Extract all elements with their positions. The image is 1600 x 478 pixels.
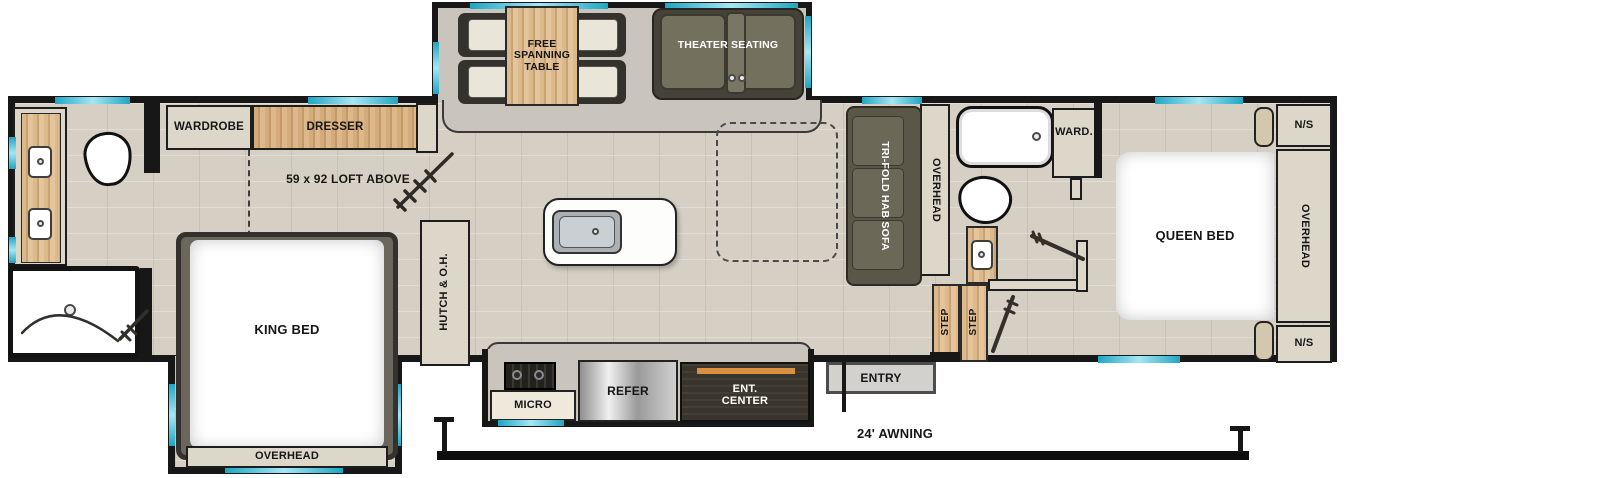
- faucet-icon: [37, 220, 44, 227]
- window: [805, 16, 811, 88]
- island-sink-basin: [559, 216, 615, 248]
- faucet-icon: [978, 251, 985, 258]
- ent-center-label: ENT. CENTER: [710, 382, 780, 410]
- rear-wardrobe: [1052, 108, 1096, 178]
- dresser-label: DRESSER: [252, 105, 418, 150]
- bedroom-pillar: [416, 103, 438, 153]
- living-overhead-label: OVERHEAD: [928, 115, 942, 265]
- slide-footprint-outline: [716, 122, 838, 262]
- window: [308, 97, 398, 104]
- shower-head-icon: [64, 304, 76, 316]
- window: [169, 384, 175, 446]
- awning-label: 24' AWNING: [820, 426, 970, 442]
- nightstand-bottom-label: N/S: [1276, 325, 1332, 363]
- cupholder: [728, 74, 736, 82]
- bath-wall: [144, 103, 160, 173]
- window: [433, 42, 439, 94]
- window: [1098, 356, 1180, 363]
- micro-label: MICRO: [490, 390, 576, 421]
- floorplan: FREE SPANNING TABLE THEATER SEATING WARD…: [0, 0, 1600, 478]
- awning-arm-cap: [434, 417, 454, 422]
- king-bed-mattress: [190, 240, 384, 448]
- step-upper-label: STEP: [940, 290, 952, 354]
- loft-label: 59 x 92 LOFT ABOVE: [278, 171, 418, 187]
- queen-bolster: [1254, 107, 1274, 147]
- sofa-label: TRI-FOLD HAB SOFA: [869, 136, 899, 256]
- rear-wardrobe-post: [1070, 178, 1082, 200]
- refer-label: REFER: [578, 376, 678, 406]
- bench-cushion: [576, 66, 618, 98]
- window: [9, 137, 16, 169]
- queen-bolster: [1254, 321, 1274, 361]
- tub-drain-icon: [1032, 132, 1041, 141]
- rear-overhead-label: OVERHEAD: [1297, 161, 1311, 311]
- burner: [534, 370, 544, 380]
- faucet-icon: [37, 158, 44, 165]
- hutch-label: HUTCH & O.H.: [438, 222, 452, 362]
- half-wall: [1076, 240, 1088, 292]
- awning-arm-cap: [1230, 426, 1250, 431]
- bedroom-wall: [1094, 103, 1102, 178]
- theater-seating-label: THEATER SEATING: [652, 38, 804, 54]
- king-bed-label: KING BED: [227, 322, 347, 338]
- window: [1155, 97, 1243, 104]
- awning-arm: [1238, 431, 1243, 452]
- window: [55, 97, 130, 104]
- front-vanity-wood: [21, 113, 61, 263]
- window: [498, 420, 564, 426]
- free-spanning-table-label: FREE SPANNING TABLE: [510, 12, 574, 100]
- wardrobe-label: WARDROBE: [166, 105, 252, 150]
- window: [9, 237, 16, 263]
- faucet-icon: [592, 228, 599, 235]
- bench-cushion: [576, 19, 618, 51]
- cupholder: [738, 74, 746, 82]
- window: [862, 97, 922, 104]
- bench-cushion: [468, 66, 508, 98]
- entry-door-frame: [842, 362, 846, 412]
- step-lower-label: STEP: [968, 290, 980, 354]
- king-overhead-label: OVERHEAD: [186, 446, 388, 468]
- tv-accent: [697, 368, 795, 374]
- bath-wall: [140, 268, 152, 358]
- nightstand-top-label: N/S: [1276, 104, 1332, 147]
- half-wall: [988, 279, 1088, 291]
- bench-cushion: [468, 19, 508, 51]
- burner: [512, 370, 522, 380]
- awning-bar: [437, 451, 1249, 460]
- rear-wardrobe-label: WARD.: [1048, 126, 1100, 140]
- queen-bed-label: QUEEN BED: [1135, 228, 1255, 244]
- awning-arm: [442, 422, 447, 452]
